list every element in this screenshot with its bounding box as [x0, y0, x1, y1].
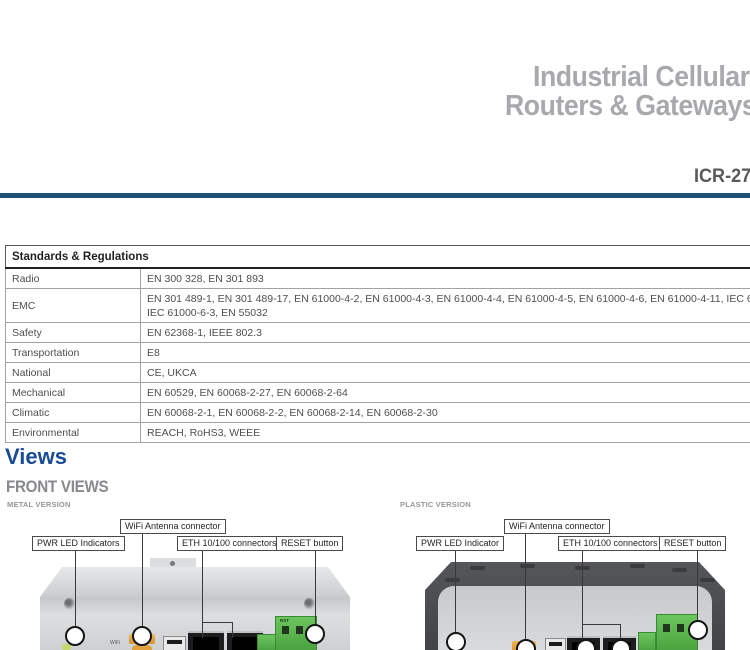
usb-port: [545, 638, 566, 650]
label-reset-metal: RESET button: [276, 536, 343, 551]
row-value: EN 60529, EN 60068-2-27, EN 60068-2-64: [141, 383, 750, 403]
leader-line: [202, 550, 203, 638]
vent: [470, 566, 485, 570]
callout-circle-reset: [305, 624, 325, 644]
callout-circle-wifi: [132, 626, 152, 646]
label-eth-plastic: ETH 10/100 connectors: [558, 536, 663, 551]
callout-circle-pwr: [65, 626, 85, 646]
vent: [445, 578, 460, 582]
metal-device-top: [40, 567, 350, 597]
leader-line: [582, 550, 583, 641]
terminal-slot: [296, 626, 303, 634]
leader-line: [697, 550, 698, 622]
label-pwr-led-plastic: PWR LED Indicator: [416, 536, 504, 551]
row-value: CE, UKCA: [141, 363, 750, 383]
leader-line: [202, 622, 233, 623]
row-value: EN 60068-2-1, EN 60068-2-2, EN 60068-2-1…: [141, 403, 750, 423]
leader-line: [315, 550, 316, 628]
wifi-marking: WiFi: [110, 640, 120, 646]
leader-line: [232, 622, 233, 638]
row-label: Transportation: [6, 343, 141, 363]
eth-port: [188, 631, 224, 650]
row-label: Climatic: [6, 403, 141, 423]
label-wifi-antenna-plastic: WiFi Antenna connector: [504, 519, 610, 534]
row-value: EN 62368-1, IEEE 802.3: [141, 323, 750, 343]
terminal-block: [257, 634, 276, 650]
leader-line: [142, 532, 143, 630]
leader-line: [75, 550, 76, 630]
variant-label-plastic: PLASTIC VERSION: [400, 500, 471, 509]
header-divider: [0, 193, 750, 198]
screw-icon: [64, 598, 75, 609]
terminal-block: [638, 632, 656, 650]
row-label: Mechanical: [6, 383, 141, 403]
screw-icon: [170, 561, 175, 566]
callout-circle-pwr: [446, 632, 466, 650]
table-title: Standards & Regulations: [6, 246, 750, 269]
screw-icon: [304, 598, 315, 609]
row-label: EMC: [6, 289, 141, 323]
label-reset-plastic: RESET button: [659, 536, 726, 551]
vent: [672, 568, 687, 572]
label-eth-metal: ETH 10/100 connectors: [177, 536, 282, 551]
label-wifi-antenna-metal: WiFi Antenna connector: [120, 519, 226, 534]
rst-marking: RST: [280, 618, 289, 623]
leader-line: [582, 624, 621, 625]
row-value: EN 300 328, EN 301 893: [141, 268, 750, 289]
usb-slot: [549, 642, 562, 646]
terminal-slot: [663, 624, 670, 632]
variant-label-metal: METAL VERSION: [7, 500, 71, 509]
datasheet-page: Industrial Cellular Routers & Gateways I…: [0, 0, 750, 650]
callout-circle-reset: [688, 620, 708, 640]
usb-slot: [167, 640, 182, 644]
model-number: ICR-27: [694, 166, 750, 188]
terminal-slot: [282, 626, 289, 634]
eth-port-slot: [232, 637, 258, 650]
row-value: EN 301 489-1, EN 301 489-17, EN 61000-4-…: [141, 289, 750, 323]
vent: [700, 578, 715, 582]
row-label: Environmental: [6, 423, 141, 443]
usb-port: [163, 636, 186, 650]
row-value: REACH, RoHS3, WEEE: [141, 423, 750, 443]
standards-table: Standards & Regulations Radio EN 300 328…: [5, 245, 750, 443]
eth-port-slot: [193, 637, 219, 650]
row-label: National: [6, 363, 141, 383]
terminal-slot: [677, 624, 684, 632]
row-label: Radio: [6, 268, 141, 289]
section-title-views: Views: [5, 444, 67, 470]
row-label: Safety: [6, 323, 141, 343]
doc-title-line2: Routers & Gateways: [505, 90, 750, 123]
leader-line: [525, 532, 526, 642]
subsection-front-views: FRONT VIEWS: [6, 478, 108, 497]
vent: [630, 564, 645, 568]
leader-line: [455, 550, 456, 634]
vent: [520, 564, 535, 568]
label-pwr-led-metal: PWR LED Indicators: [32, 536, 125, 551]
row-value: E8: [141, 343, 750, 363]
